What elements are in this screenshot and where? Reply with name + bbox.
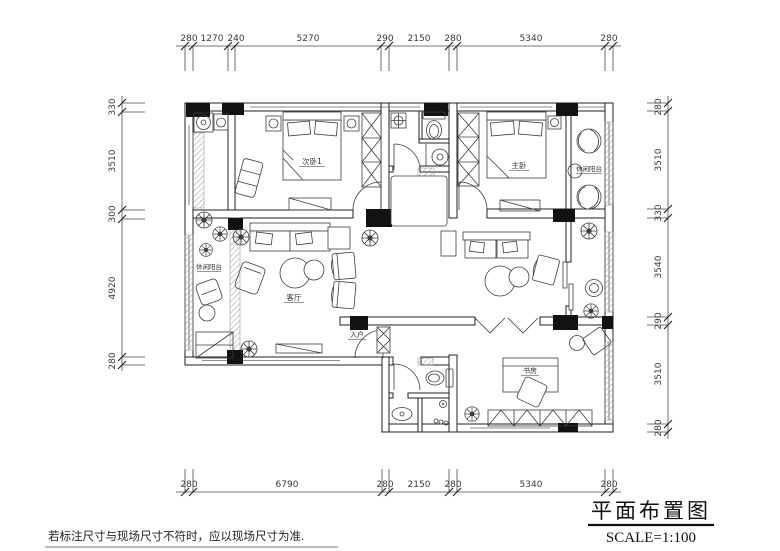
master-bedroom bbox=[458, 112, 561, 211]
dim-top-7: 5340 bbox=[520, 34, 543, 44]
dim-right-5: 3510 bbox=[654, 362, 664, 385]
title-block: 平面布置图 SCALE=1:100 bbox=[588, 499, 714, 546]
dim-bottom-1: 6790 bbox=[276, 480, 299, 490]
drawing-scale: SCALE=1:100 bbox=[606, 530, 696, 546]
plant-icon bbox=[362, 230, 378, 246]
dim-top-4: 290 bbox=[376, 34, 393, 44]
dim-bottom-2: 280 bbox=[376, 480, 393, 490]
plant-icon bbox=[584, 304, 598, 318]
hallway bbox=[391, 176, 447, 226]
dimension-chain-top: 280 1270 240 5270 290 2150 280 5340 280 bbox=[176, 34, 621, 71]
label-balcony-left: 休闲阳台 bbox=[196, 262, 222, 271]
dining-room bbox=[441, 231, 573, 310]
moon-chair-icon bbox=[574, 182, 603, 211]
moon-chair-icon bbox=[575, 127, 603, 155]
dim-left-2: 300 bbox=[108, 205, 118, 222]
balcony-left bbox=[195, 278, 233, 358]
label-master-bedroom: 主卧 bbox=[512, 160, 527, 170]
plant-icon bbox=[241, 341, 257, 357]
dim-bottom-3: 2150 bbox=[408, 480, 431, 490]
label-entry: 入户 bbox=[350, 330, 364, 339]
dim-top-0: 280 bbox=[180, 34, 197, 44]
dim-right-3: 3540 bbox=[654, 255, 664, 278]
dim-top-5: 2150 bbox=[408, 34, 431, 44]
dim-left-3: 4920 bbox=[108, 276, 118, 299]
drawing-title: 平面布置图 bbox=[591, 499, 711, 523]
dimension-chain-left: 330 3510 300 4920 280 bbox=[108, 96, 145, 371]
dim-right-4: 290 bbox=[654, 312, 664, 329]
plant-icon bbox=[233, 229, 249, 245]
dim-right-6: 280 bbox=[654, 419, 664, 436]
dim-top-2: 240 bbox=[227, 34, 244, 44]
label-balcony-master: 休闲阳台 bbox=[576, 164, 602, 173]
plant-icon bbox=[465, 407, 479, 421]
dim-top-1: 1270 bbox=[201, 34, 224, 44]
label-living-room: 客厅 bbox=[287, 292, 302, 302]
dim-right-0: 280 bbox=[654, 98, 664, 115]
dim-left-4: 280 bbox=[108, 352, 118, 369]
dim-left-0: 330 bbox=[108, 98, 118, 115]
label-bedroom2: 次卧1 bbox=[302, 156, 322, 166]
plant-icon bbox=[581, 223, 597, 239]
balcony-right bbox=[581, 223, 603, 318]
plant-icon bbox=[196, 212, 212, 228]
dim-top-6: 280 bbox=[444, 34, 461, 44]
dim-bottom-6: 280 bbox=[600, 480, 617, 490]
plant-icon bbox=[200, 244, 213, 257]
dim-left-1: 3510 bbox=[108, 149, 118, 172]
label-study: 书房 bbox=[523, 366, 537, 375]
dim-right-1: 3510 bbox=[654, 148, 664, 171]
floor-plan-sheet: 280 1270 240 5270 290 2150 280 5340 280 … bbox=[0, 0, 780, 551]
dim-top-3: 5270 bbox=[297, 34, 320, 44]
dim-top-8: 280 bbox=[600, 34, 617, 44]
plant-icon bbox=[213, 227, 227, 241]
dimension-chain-bottom: 280 6790 280 2150 280 5340 280 bbox=[176, 469, 621, 496]
dimension-chain-right: 280 3510 330 3540 290 3510 280 bbox=[647, 96, 672, 439]
dim-right-2: 330 bbox=[654, 204, 664, 221]
dim-bottom-5: 5340 bbox=[520, 480, 543, 490]
dim-bottom-0: 280 bbox=[180, 480, 197, 490]
site-dimension-note: 若标注尺寸与现场尺寸不符时，应以现场尺寸为准. bbox=[48, 529, 304, 543]
study bbox=[465, 318, 612, 426]
dim-bottom-4: 280 bbox=[444, 480, 461, 490]
note-block: 若标注尺寸与现场尺寸不符时，应以现场尺寸为准. bbox=[45, 529, 338, 547]
